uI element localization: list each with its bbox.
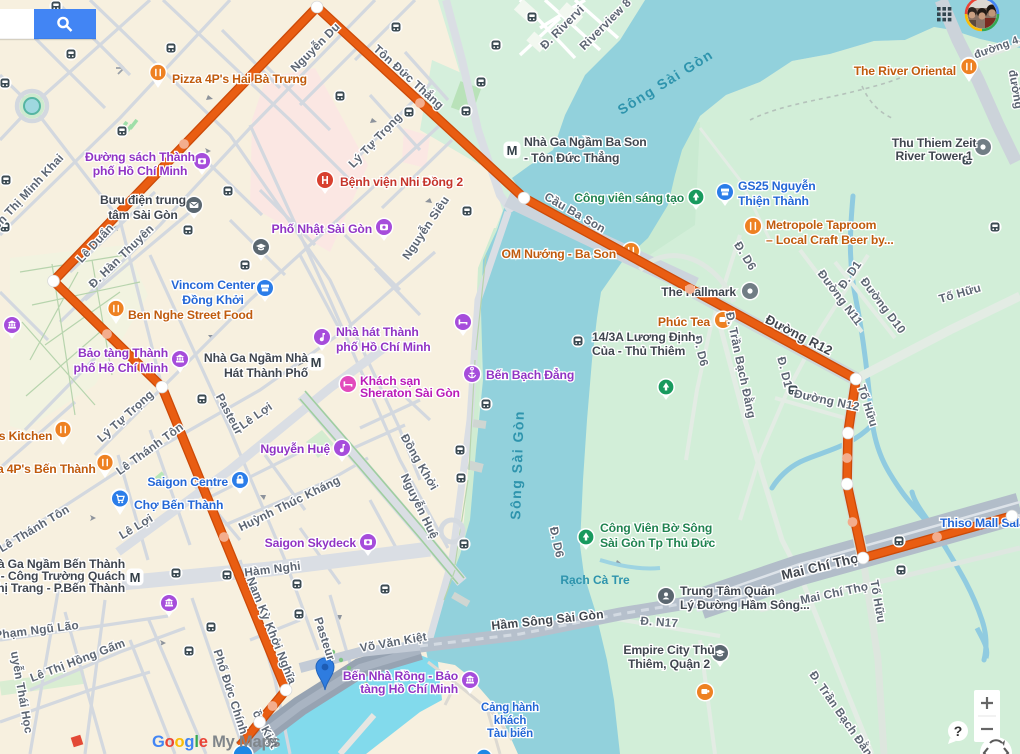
svg-text:Bệnh viện Nhi Đồng 2: Bệnh viện Nhi Đồng 2 [340,175,463,189]
svg-text:– Local Craft Beer by...: – Local Craft Beer by... [766,233,894,247]
svg-text:Của - Thủ Thiêm: Của - Thủ Thiêm [592,344,686,358]
svg-text:Cảng hành: Cảng hành [481,702,539,714]
svg-text:River Tower 1: River Tower 1 [895,149,972,163]
svg-text:Google My Maps: Google My Maps [152,733,280,751]
svg-text:Bến Nhà Rồng - Bảo: Bến Nhà Rồng - Bảo [343,669,458,683]
svg-text:Bảo tàng Thành: Bảo tàng Thành [78,346,168,360]
svg-text:Tàu biển: Tàu biển [487,728,533,740]
svg-text:Công Viên Bờ Sông: Công Viên Bờ Sông [600,521,712,535]
svg-text:Thiện Thành: Thiện Thành [738,194,809,208]
svg-text:phố Hồ Chí Minh: phố Hồ Chí Minh [73,361,168,375]
svg-text:Đường sách Thành: Đường sách Thành [85,150,195,164]
svg-text:phố Hồ Chí Minh: phố Hồ Chí Minh [336,340,431,354]
svg-text:Thị Trang - P.Bến Thành: Thị Trang - P.Bến Thành [0,581,125,595]
svg-text:za 4P's Bến Thành: za 4P's Bến Thành [0,462,96,476]
svg-text:14/3A Lương Định: 14/3A Lương Định [592,330,695,344]
svg-text:Công viên sáng tạo: Công viên sáng tạo [574,191,684,205]
svg-text:Trung Tâm Quản: Trung Tâm Quản [680,584,775,598]
svg-text:Thu Thiem Zeit: Thu Thiem Zeit [892,136,977,150]
svg-text:Bưu điện trung: Bưu điện trung [100,193,186,207]
svg-text:Nhà Ga Ngầm Ba Son: Nhà Ga Ngầm Ba Son [524,135,647,149]
svg-text:Sheraton Sài Gòn: Sheraton Sài Gòn [360,386,460,400]
svg-text:Phố Nhật Sài Gòn: Phố Nhật Sài Gòn [271,222,372,236]
svg-text:khách: khách [494,715,527,727]
svg-text:phố Hồ Chí Minh: phố Hồ Chí Minh [93,164,188,178]
svg-text:Đồng Khởi: Đồng Khởi [182,293,243,307]
svg-text:The River Oriental: The River Oriental [854,64,956,78]
svg-text:Hát Thành Phố: Hát Thành Phố [224,366,309,380]
svg-text:Empire City Thủ: Empire City Thủ [623,643,714,657]
svg-text:'s Kitchen: 's Kitchen [0,429,52,443]
svg-text:Saigon Skydeck: Saigon Skydeck [265,536,357,550]
svg-text:Ben Nghe Street Food: Ben Nghe Street Food [128,308,253,322]
svg-text:?: ? [954,723,963,739]
svg-text:Vincom Center: Vincom Center [171,278,255,292]
svg-text:The Hallmark: The Hallmark [661,285,736,299]
svg-text:Saigon Centre: Saigon Centre [147,475,228,489]
svg-text:Chợ Bến Thành: Chợ Bến Thành [134,498,223,512]
svg-text:Thiêm, Quận 2: Thiêm, Quận 2 [628,657,710,671]
svg-text:GS25 Nguyễn: GS25 Nguyễn [738,178,816,193]
svg-text:- Tôn Đức Thẳng: - Tôn Đức Thẳng [524,150,619,165]
svg-text:tàng Hồ Chí Minh: tàng Hồ Chí Minh [360,682,458,696]
svg-text:Pizza 4P's Hai Bà Trưng: Pizza 4P's Hai Bà Trưng [172,72,307,86]
svg-text:OM Nướng - Ba Son: OM Nướng - Ba Son [502,247,616,261]
svg-text:Lý Đường Hầm Sông...: Lý Đường Hầm Sông... [680,598,810,612]
svg-text:Đ. N17: Đ. N17 [640,614,679,631]
svg-text:Metropole Taproom: Metropole Taproom [766,218,877,232]
svg-text:tâm Sài Gòn: tâm Sài Gòn [108,208,177,222]
svg-text:Nguyễn Huệ: Nguyễn Huệ [260,441,330,456]
svg-text:Phúc Tea: Phúc Tea [658,315,710,329]
svg-text:Rạch Cà Tre: Rạch Cà Tre [560,573,630,587]
svg-text:Sài Gòn Tp Thủ Đức: Sài Gòn Tp Thủ Đức [600,536,716,550]
svg-text:Bến Bạch Đẳng: Bến Bạch Đẳng [486,367,574,382]
svg-text:Nhà hát Thành: Nhà hát Thành [336,325,419,339]
svg-text:Nhà Ga Ngầm Nhà: Nhà Ga Ngầm Nhà [204,351,308,365]
